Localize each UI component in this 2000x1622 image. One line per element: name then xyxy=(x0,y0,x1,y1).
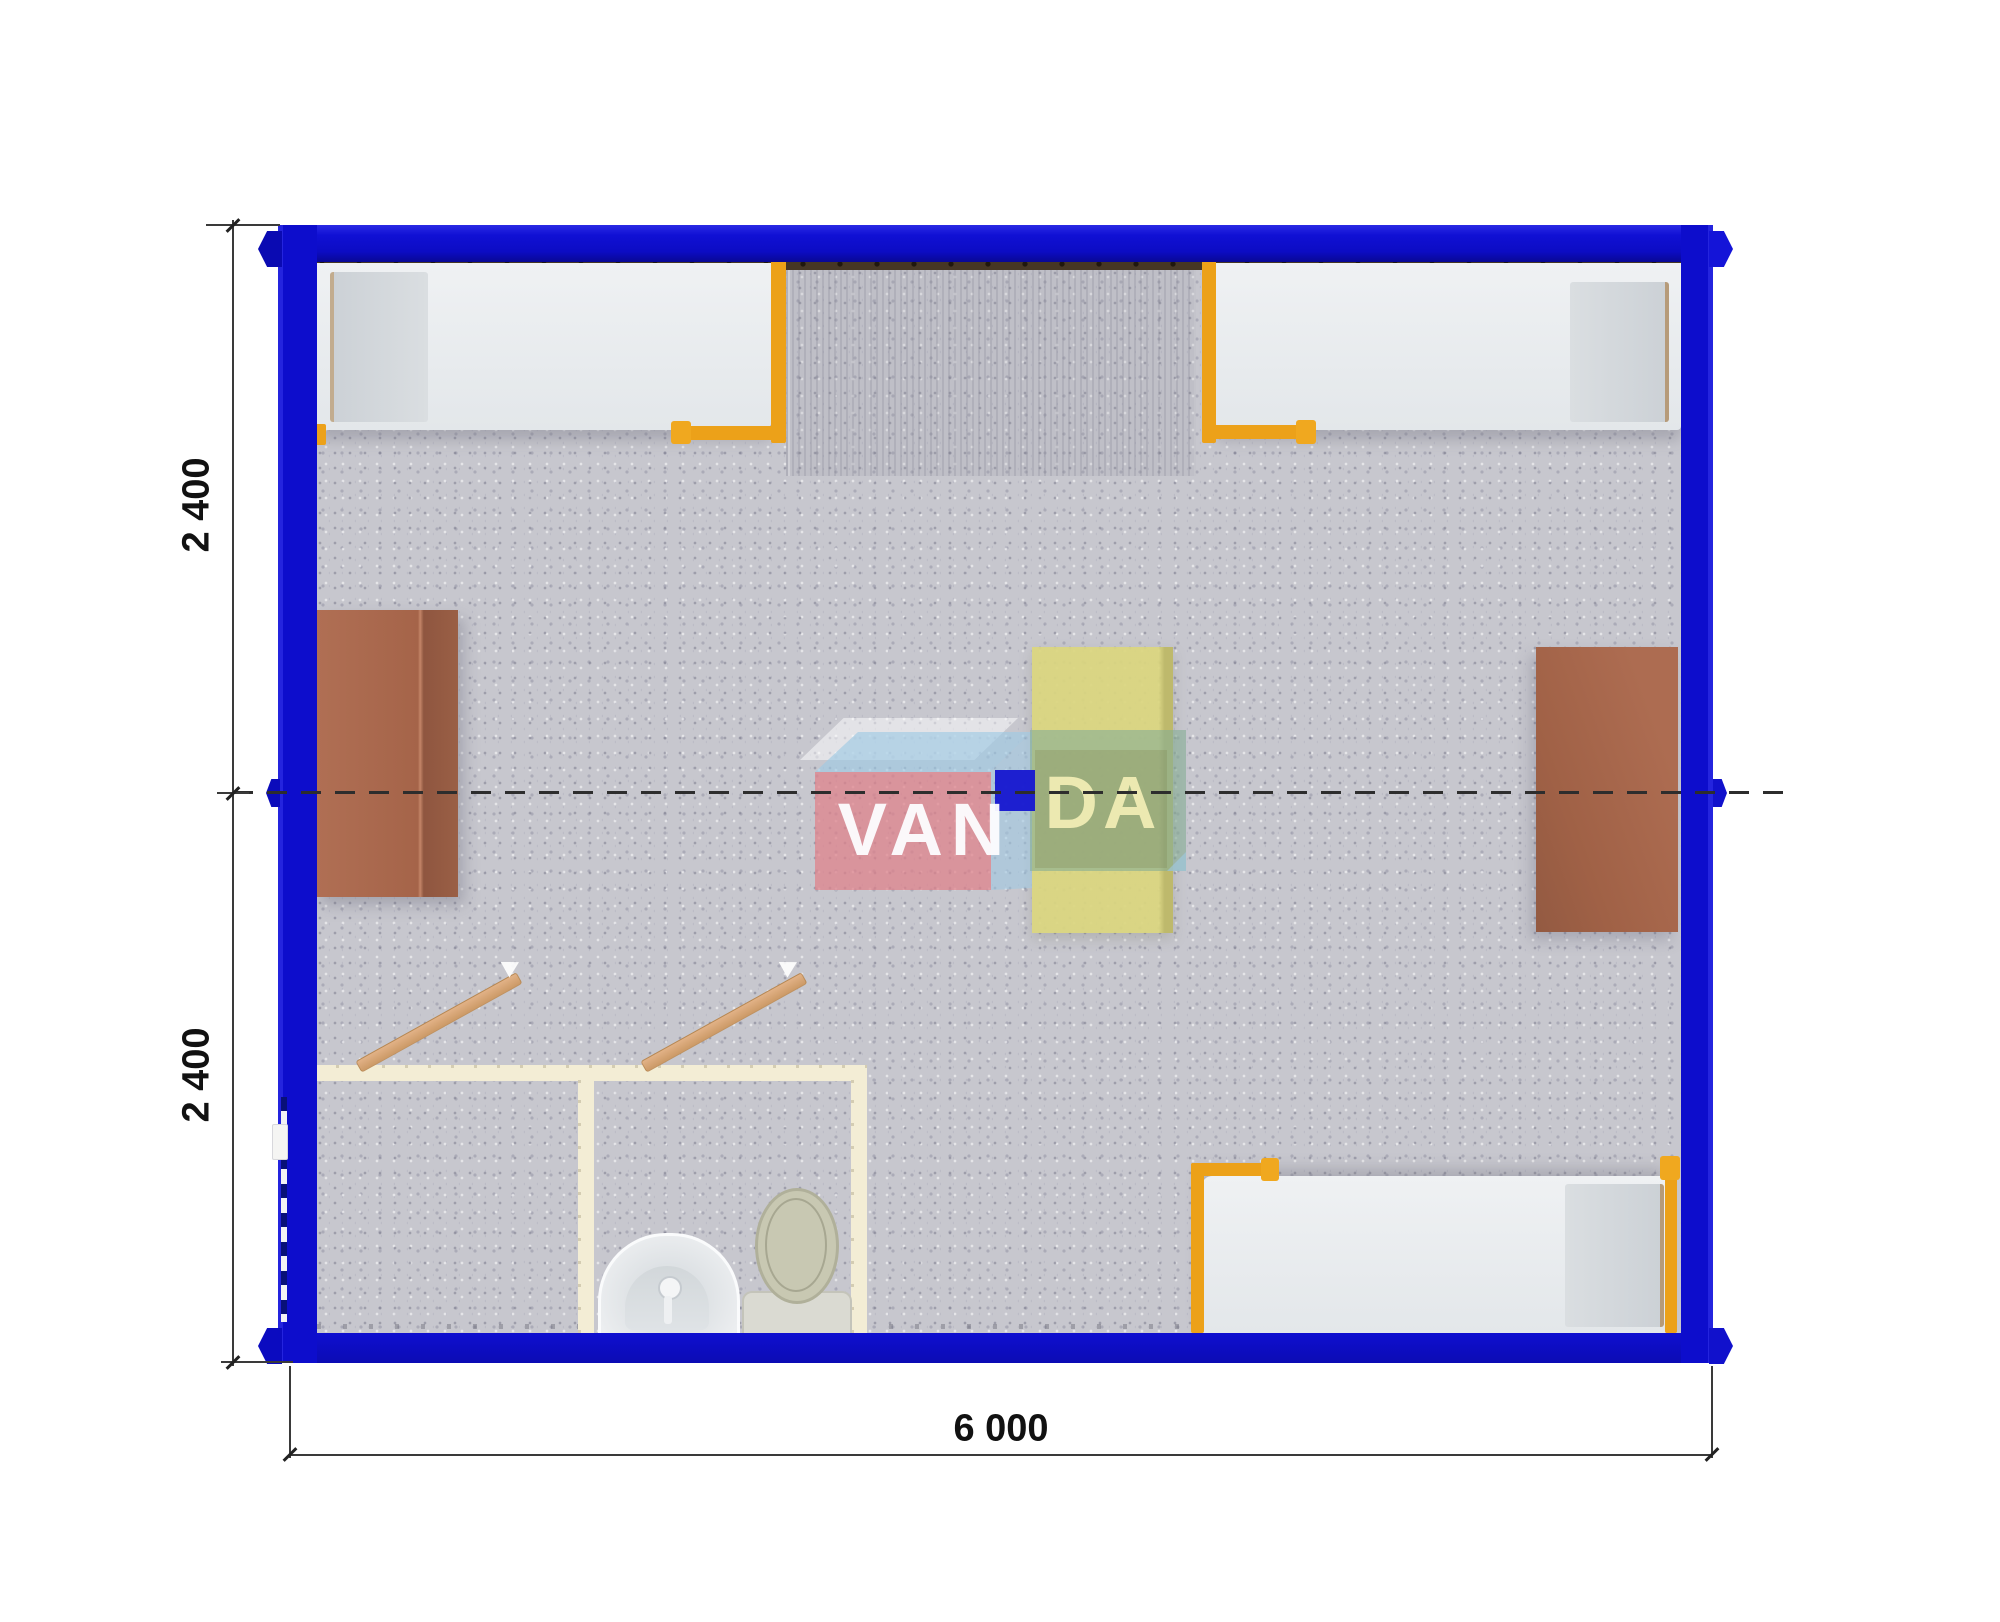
dim-ext-vert-right xyxy=(1711,1366,1713,1458)
module-joint-line xyxy=(233,791,1795,794)
table-right xyxy=(1536,647,1678,932)
bed2-frame-tab xyxy=(1296,420,1316,444)
floor-seam-left xyxy=(788,270,790,476)
bathroom-wall-vertical-2 xyxy=(851,1080,867,1333)
dim-label-lower-module: 2 400 xyxy=(176,1027,219,1122)
corner-casting-top-right xyxy=(1709,231,1733,267)
bed3-frame-right-tab xyxy=(1660,1156,1680,1180)
entrance-door-handle xyxy=(272,1124,288,1160)
bed1-frame-tab xyxy=(671,421,691,444)
toilet-lid xyxy=(755,1188,839,1304)
logo-text-da: DA xyxy=(1033,733,1173,873)
bed1-frame-bottom xyxy=(676,426,786,440)
bed3-frame-right xyxy=(1665,1160,1677,1333)
bathroom-wall-horizontal xyxy=(313,1065,867,1081)
pillow-top-right xyxy=(1570,282,1669,422)
dim-label-upper-module: 2 400 xyxy=(176,457,219,552)
corner-casting-top-left xyxy=(258,231,282,267)
floor-seam-right xyxy=(1194,270,1196,476)
pillow-top-left xyxy=(330,272,428,422)
dim-label-total-width: 6 000 xyxy=(953,1408,1048,1451)
dim-line-bottom xyxy=(290,1454,1713,1456)
sink-faucet-stem xyxy=(664,1296,672,1324)
dim-ext-vert-left xyxy=(289,1366,291,1458)
bed3-frame-tab xyxy=(1261,1158,1279,1181)
bathroom-wall-vertical-1 xyxy=(578,1080,594,1333)
floor-center-band xyxy=(786,270,1196,476)
bed3-frame-left xyxy=(1191,1163,1204,1333)
bed1-frame-right xyxy=(771,257,786,443)
dim-ext-top xyxy=(206,224,280,226)
frame-wall-top xyxy=(278,225,1713,262)
frame-wall-right xyxy=(1681,225,1713,1363)
toilet-lid-inner xyxy=(765,1198,827,1292)
corner-casting-bottom-left xyxy=(258,1328,282,1364)
frame-wall-bottom xyxy=(278,1333,1713,1363)
logo-text-van: VAN xyxy=(815,770,1035,890)
table-left xyxy=(315,610,458,897)
corner-casting-bottom-right xyxy=(1709,1328,1733,1364)
floor-plan-canvas: VAN DA 2 400 2 400 6 000 xyxy=(0,0,2000,1622)
pillow-bottom-right xyxy=(1565,1184,1664,1327)
bed2-frame-left xyxy=(1202,257,1216,443)
